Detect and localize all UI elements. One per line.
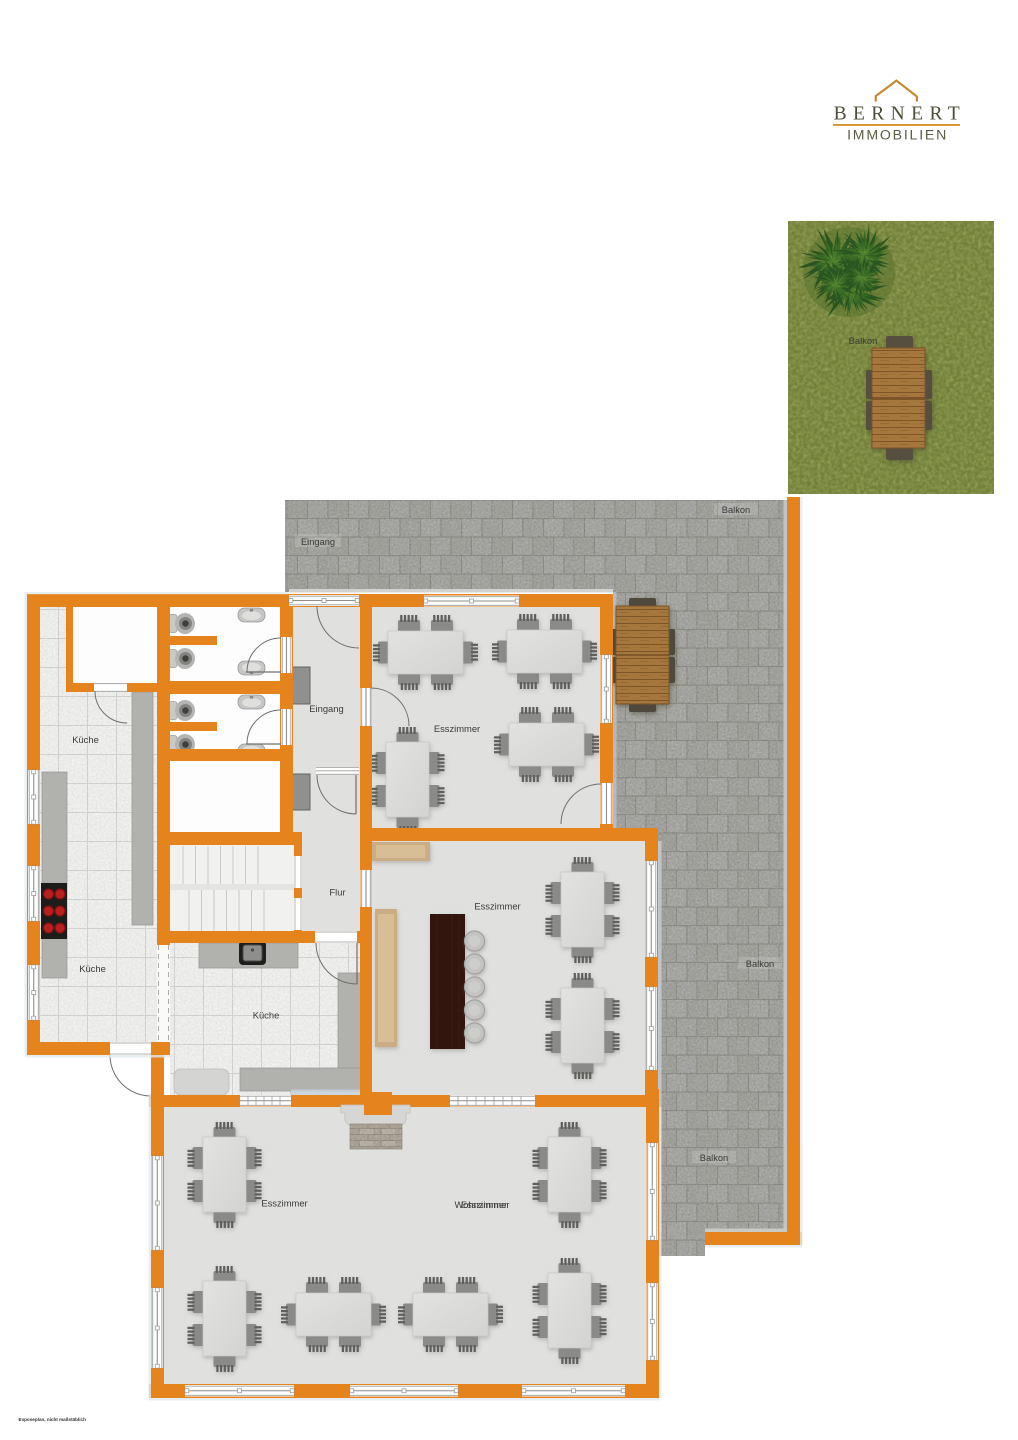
svg-text:Küche: Küche [79, 963, 106, 974]
svg-text:Eingang: Eingang [309, 703, 343, 714]
svg-text:Küche: Küche [72, 734, 99, 745]
svg-text:Balkon: Balkon [849, 335, 878, 346]
svg-text:Balkon: Balkon [746, 959, 774, 969]
svg-text:Flur: Flur [329, 887, 345, 898]
svg-text:BERNERT: BERNERT [834, 104, 966, 125]
svg-text:Esszimmer: Esszimmer [434, 723, 480, 734]
svg-text:Esszimmer: Esszimmer [461, 1199, 507, 1210]
svg-text:Eingang: Eingang [301, 537, 335, 547]
svg-text:IMMOBILIEN: IMMOBILIEN [847, 127, 948, 143]
svg-text:Exposeplan, nicht maßstäblich: Exposeplan, nicht maßstäblich [19, 1417, 87, 1422]
svg-text:Balkon: Balkon [722, 505, 750, 515]
svg-text:Esszimmer: Esszimmer [261, 1198, 307, 1209]
svg-text:Esszimmer: Esszimmer [474, 901, 520, 912]
svg-text:Küche: Küche [253, 1010, 280, 1021]
svg-text:Balkon: Balkon [700, 1153, 728, 1163]
